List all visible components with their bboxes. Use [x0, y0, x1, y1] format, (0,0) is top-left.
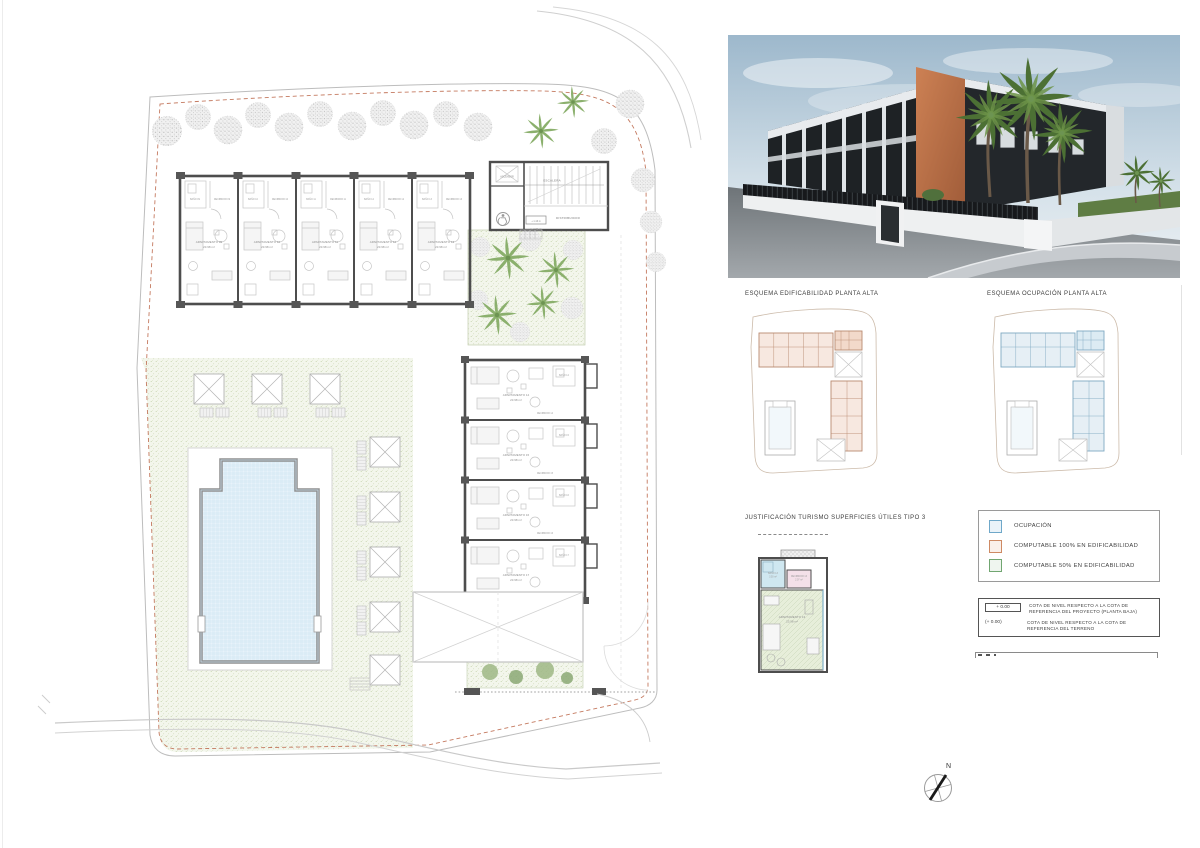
legend-item-computable-50: COMPUTABLE 50% EN EDIFICABILIDAD: [989, 559, 1149, 572]
room-label: RECIBIDOR 09: [214, 199, 231, 201]
room-label: BAÑO 17: [559, 554, 569, 557]
esquema-edificabilidad-plan: [743, 303, 883, 483]
building-3d-render: [728, 35, 1180, 278]
legend-label: COMPUTABLE 100% EN EDIFICABILIDAD: [1014, 543, 1138, 549]
distribuidor-label: DISTRIBUIDOR: [556, 216, 581, 220]
architectural-sheet: APARTAMENTO 0923.98 m²BAÑO 09RECIBIDOR 0…: [0, 0, 1200, 848]
room-label: 23.98 m²: [203, 245, 215, 249]
room-label: APARTAMENTO 14: [503, 393, 530, 397]
stairs-label: ESCALERA: [543, 179, 561, 183]
level-label: (+ 1.74 m): [531, 228, 542, 231]
room-label: BAÑO 11: [306, 198, 316, 201]
esquema-edificabilidad-title: ESQUEMA EDIFICABILIDAD PLANTA ALTA: [745, 291, 878, 297]
north-label: N: [946, 763, 951, 770]
legend-item-computable-100: COMPUTABLE 100% EN EDIFICABILIDAD: [989, 540, 1149, 553]
room-label: RECIBIDOR 10: [272, 199, 289, 201]
room-label: APARTAMENTO 12: [370, 240, 397, 244]
room-label: RECIBIDOR 11: [330, 199, 347, 201]
note-row-project: + 0.00 COTA DE NIVEL RESPECTO A LA COTA …: [985, 603, 1153, 615]
room-label: 23.98 m²: [435, 245, 447, 249]
legend-swatch-computable-100: [989, 540, 1002, 553]
legend-swatch-computable-50: [989, 559, 1002, 572]
room-label: BAÑO 14: [559, 374, 569, 377]
bano-label: BAÑO 13: [768, 572, 778, 575]
room-label: 23.98 m²: [510, 458, 522, 462]
note-row-terrain: (+ 0.00) COTA DE NIVEL RESPECTO A LA COT…: [985, 620, 1153, 632]
room-label: RECIBIDOR 16: [537, 533, 554, 535]
legend-label: COMPUTABLE 50% EN EDIFICABILIDAD: [1014, 563, 1135, 569]
legend-label: OCUPACIÓN: [1014, 523, 1052, 529]
apartamento-label: APARTAMENTO 13: [779, 615, 806, 619]
north-needle: [930, 775, 946, 800]
recibidor-label: RECIBIDOR 13: [791, 576, 808, 578]
level-symbol: (+ 0.00): [985, 620, 1019, 625]
note-text: COTA DE NIVEL RESPECTO A LA COTA DE REFE…: [1029, 603, 1153, 615]
shade-structure: [413, 592, 583, 662]
level-label: + 1.16 m: [531, 220, 540, 223]
site-plan-drawing: APARTAMENTO 0923.98 m²BAÑO 09RECIBIDOR 0…: [0, 0, 720, 848]
room-label: APARTAMENTO 15: [503, 453, 530, 457]
legend-item-ocupacion: OCUPACIÓN: [989, 520, 1149, 533]
room-label: 23.98 m²: [319, 245, 331, 249]
room-label: BAÑO 10: [248, 198, 258, 201]
room-label: APARTAMENTO 16: [503, 513, 530, 517]
bano-area: 3.50 m²: [769, 576, 777, 579]
render-scene: [728, 35, 1180, 278]
title-underline: [758, 534, 828, 535]
esquema-ocupacion-title: ESQUEMA OCUPACIÓN PLANTA ALTA: [987, 291, 1107, 297]
legend-swatch-ocupacion: [989, 520, 1002, 533]
note-text: COTA DE NIVEL RESPECTO A LA COTA DE REFE…: [1027, 620, 1153, 632]
room-label: RECIBIDOR 14: [537, 413, 554, 415]
unit-type3-detail-plan: BAÑO 13 3.50 m² RECIBIDOR 13 2.07 m² APA…: [755, 548, 835, 676]
room-label: BAÑO 09: [190, 198, 200, 201]
clipped-legend-box: [975, 652, 1158, 658]
room-label: 23.98 m²: [510, 398, 522, 402]
room-label: BAÑO 16: [559, 494, 569, 497]
room-label: BAÑO 12: [364, 198, 374, 201]
room-label: APARTAMENTO 10: [254, 240, 281, 244]
level-symbol-boxed: + 0.00: [985, 603, 1021, 612]
room-label: BAÑO 15: [559, 434, 569, 437]
room-label: 23.98 m²: [261, 245, 273, 249]
room-label: 23.98 m²: [510, 518, 522, 522]
room-label: 23.98 m²: [377, 245, 389, 249]
page-edge-line: [1181, 285, 1182, 455]
room-label: APARTAMENTO 11: [312, 240, 339, 244]
room-label: APARTAMENTO 13: [428, 240, 455, 244]
room-label: APARTAMENTO 17: [503, 573, 530, 577]
north-compass: N: [915, 755, 965, 810]
pool-area: [188, 448, 332, 670]
dashed-line-sample: [978, 654, 996, 656]
room-label: RECIBIDOR 15: [537, 473, 554, 475]
room-label: BAÑO 13: [422, 198, 432, 201]
room-label: APARTAMENTO 09: [196, 240, 223, 244]
elevator-label: ASCENSOR: [500, 176, 514, 179]
recibidor-area: 2.07 m²: [795, 579, 803, 582]
justificacion-title: JUSTIFICACIÓN TURISMO SUPERFICIES ÚTILES…: [745, 515, 926, 521]
room-label: RECIBIDOR 13: [446, 199, 463, 201]
level-notes: + 0.00 COTA DE NIVEL RESPECTO A LA COTA …: [978, 598, 1160, 637]
legend: OCUPACIÓN COMPUTABLE 100% EN EDIFICABILI…: [978, 510, 1160, 582]
esquema-ocupacion-plan: [985, 303, 1125, 483]
apartamento-area: 23.98 m²: [786, 620, 798, 624]
room-label: 23.98 m²: [510, 578, 522, 582]
room-label: RECIBIDOR 12: [388, 199, 405, 201]
